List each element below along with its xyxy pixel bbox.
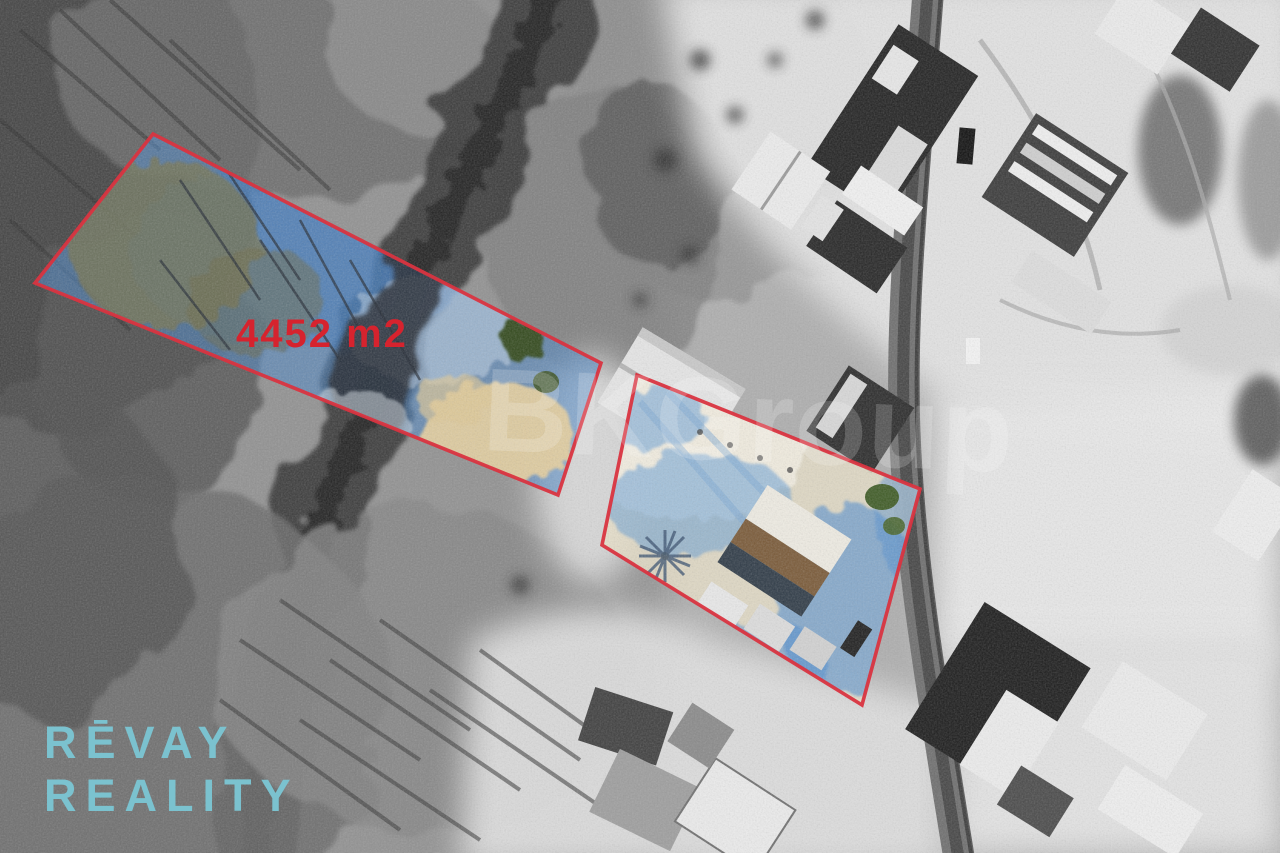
aerial-photo-stage: BKGroup 4452 m2 RĒVAY REALITY: [0, 0, 1280, 853]
watermark: BKGroup: [480, 342, 1017, 500]
agency-logo-line1: RĒVAY: [44, 716, 300, 769]
parcel-area-label: 4452 m2: [236, 312, 408, 357]
agency-logo-line2: REALITY: [44, 769, 300, 822]
agency-logo: RĒVAY REALITY: [44, 716, 300, 822]
